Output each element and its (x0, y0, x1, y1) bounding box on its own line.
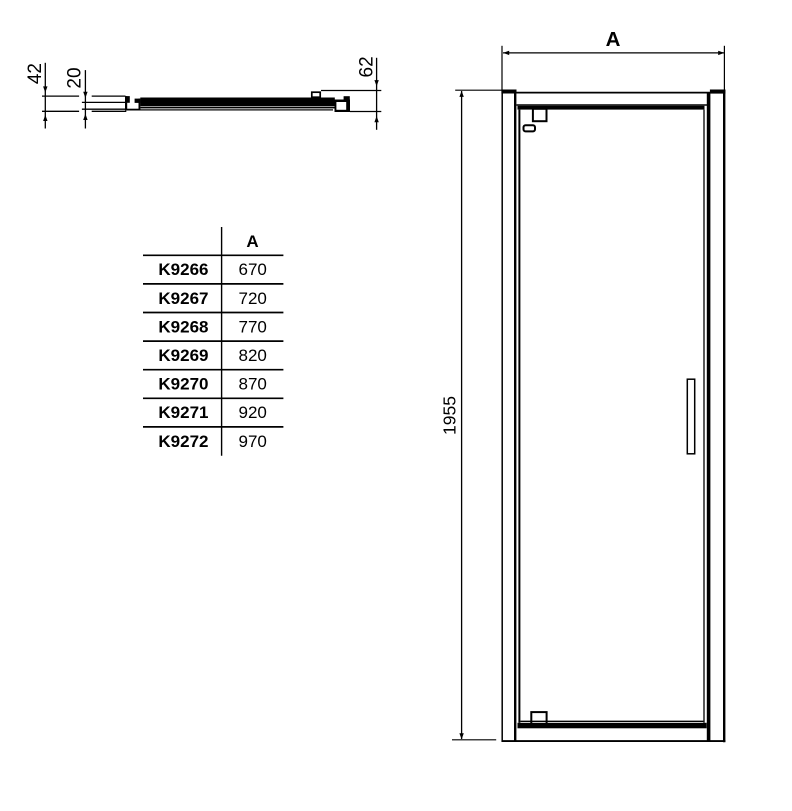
svg-text:A: A (246, 232, 258, 251)
svg-text:K9266: K9266 (158, 260, 208, 279)
svg-text:670: 670 (239, 260, 267, 279)
svg-text:K9270: K9270 (158, 375, 208, 394)
svg-text:62: 62 (356, 56, 377, 77)
svg-text:K9269: K9269 (158, 346, 208, 365)
svg-text:1955: 1955 (439, 396, 459, 435)
svg-text:42: 42 (25, 63, 46, 84)
svg-text:870: 870 (239, 375, 267, 394)
svg-text:770: 770 (239, 317, 267, 336)
svg-text:920: 920 (239, 403, 267, 422)
svg-text:970: 970 (239, 432, 267, 451)
svg-text:20: 20 (64, 67, 85, 88)
svg-text:A: A (606, 28, 621, 51)
svg-text:K9267: K9267 (158, 289, 208, 308)
svg-text:720: 720 (239, 289, 267, 308)
svg-text:K9268: K9268 (158, 317, 208, 336)
svg-text:K9272: K9272 (158, 432, 208, 451)
svg-text:K9271: K9271 (158, 403, 208, 422)
svg-text:820: 820 (239, 346, 267, 365)
